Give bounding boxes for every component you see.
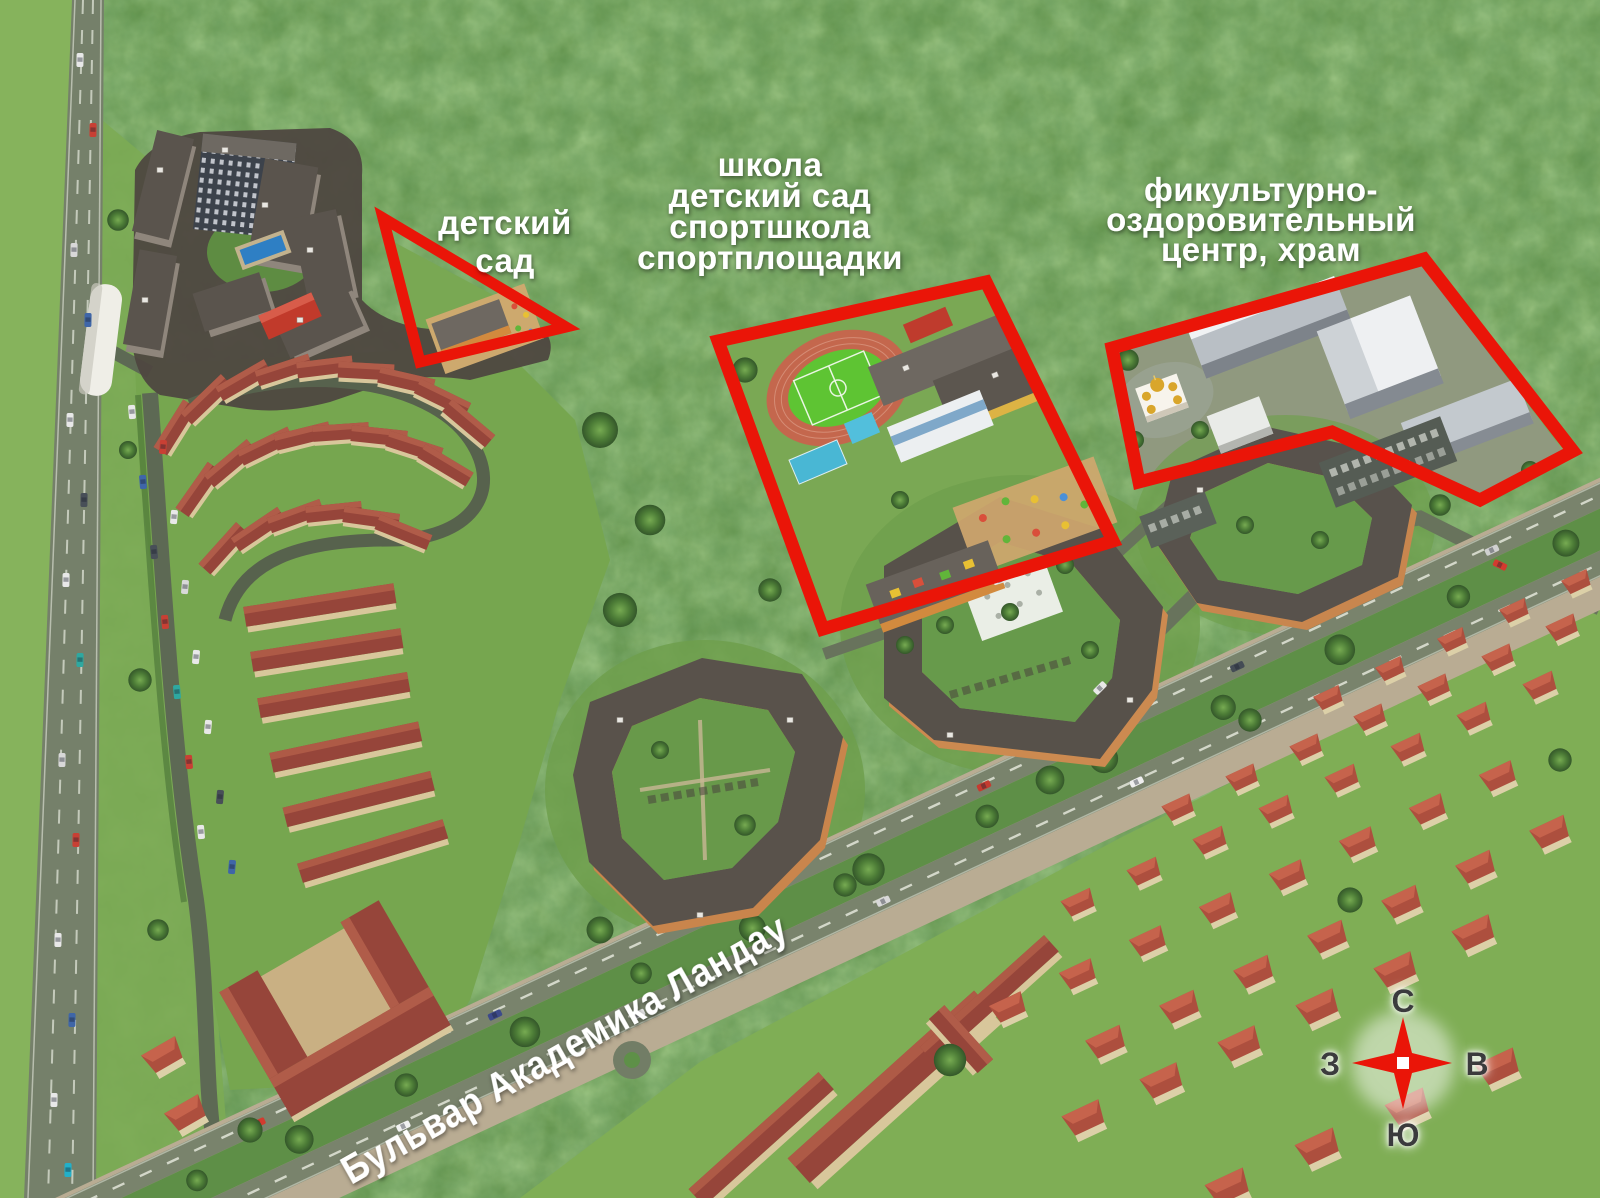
car-icon [70, 243, 77, 257]
roof-unit [297, 318, 303, 323]
car-icon [197, 825, 205, 840]
tree-icon [1238, 708, 1261, 731]
car-icon [62, 573, 69, 587]
car-icon [72, 833, 79, 847]
roof-unit [222, 148, 228, 153]
roof-unit [1127, 698, 1133, 703]
tree-icon [1429, 494, 1451, 516]
compass-west-label: З [1320, 1046, 1340, 1082]
tree-icon [1337, 887, 1362, 912]
label-kindergarten-line1: детский [438, 204, 572, 241]
roof-unit [157, 168, 163, 173]
car-icon [185, 755, 193, 770]
car-icon [139, 475, 147, 490]
car-icon [64, 1163, 71, 1177]
tree-icon [651, 741, 669, 759]
tree-icon [582, 412, 618, 448]
car-icon [76, 653, 83, 667]
tree-icon [635, 505, 666, 536]
compass-south-label: Ю [1387, 1117, 1420, 1153]
tree-icon [107, 209, 129, 231]
tree-icon [833, 873, 856, 896]
roof-unit [617, 718, 623, 723]
masterplan-map: детский сад школа детский сад спортшкола… [0, 0, 1600, 1198]
car-icon [216, 790, 224, 805]
car-icon [161, 615, 169, 630]
roof-unit [262, 203, 268, 208]
tree-icon [936, 616, 954, 634]
tree-icon [1001, 603, 1019, 621]
car-icon [76, 53, 83, 67]
car-icon [68, 1013, 75, 1027]
car-icon [128, 405, 136, 420]
tree-icon [587, 917, 614, 944]
car-icon [58, 753, 65, 767]
tree-icon [1036, 766, 1065, 795]
car-icon [89, 123, 96, 137]
car-icon [50, 1093, 57, 1107]
roof-unit [1197, 488, 1203, 493]
car-icon [192, 650, 200, 665]
roof-unit [142, 298, 148, 303]
car-icon [159, 440, 167, 455]
car-icon [66, 413, 73, 427]
car-icon [80, 493, 87, 507]
car-icon [204, 720, 212, 735]
compass-north-label: С [1391, 983, 1414, 1019]
car-icon [54, 933, 61, 947]
tree-icon [1311, 531, 1329, 549]
roof-unit [787, 718, 793, 723]
tree-icon [1548, 748, 1571, 771]
tree-icon [896, 636, 914, 654]
label-school-line4: спортплощадки [637, 239, 903, 276]
compass-east-label: В [1465, 1046, 1488, 1082]
roof-unit [947, 733, 953, 738]
tree-icon [237, 1117, 262, 1142]
car-icon [84, 313, 91, 327]
tree-icon [147, 919, 169, 941]
tree-icon [1236, 516, 1254, 534]
compass-center [1397, 1057, 1409, 1069]
car-icon [181, 580, 189, 595]
label-kindergarten-line2: сад [475, 242, 535, 279]
tree-icon [734, 814, 756, 836]
tree-icon [1191, 421, 1209, 439]
roof-unit [697, 913, 703, 918]
car-icon [150, 545, 158, 560]
tree-icon [758, 578, 781, 601]
tree-icon [128, 668, 151, 691]
tree-icon [934, 1044, 966, 1076]
label-wellness-line3: центр, храм [1161, 231, 1361, 268]
roof-unit [307, 248, 313, 253]
car-icon [170, 510, 178, 525]
car-icon [173, 685, 181, 700]
tree-icon [119, 441, 137, 459]
tree-icon [891, 491, 909, 509]
tree-icon [603, 593, 637, 627]
car-icon [228, 860, 236, 875]
tree-icon [1081, 641, 1099, 659]
